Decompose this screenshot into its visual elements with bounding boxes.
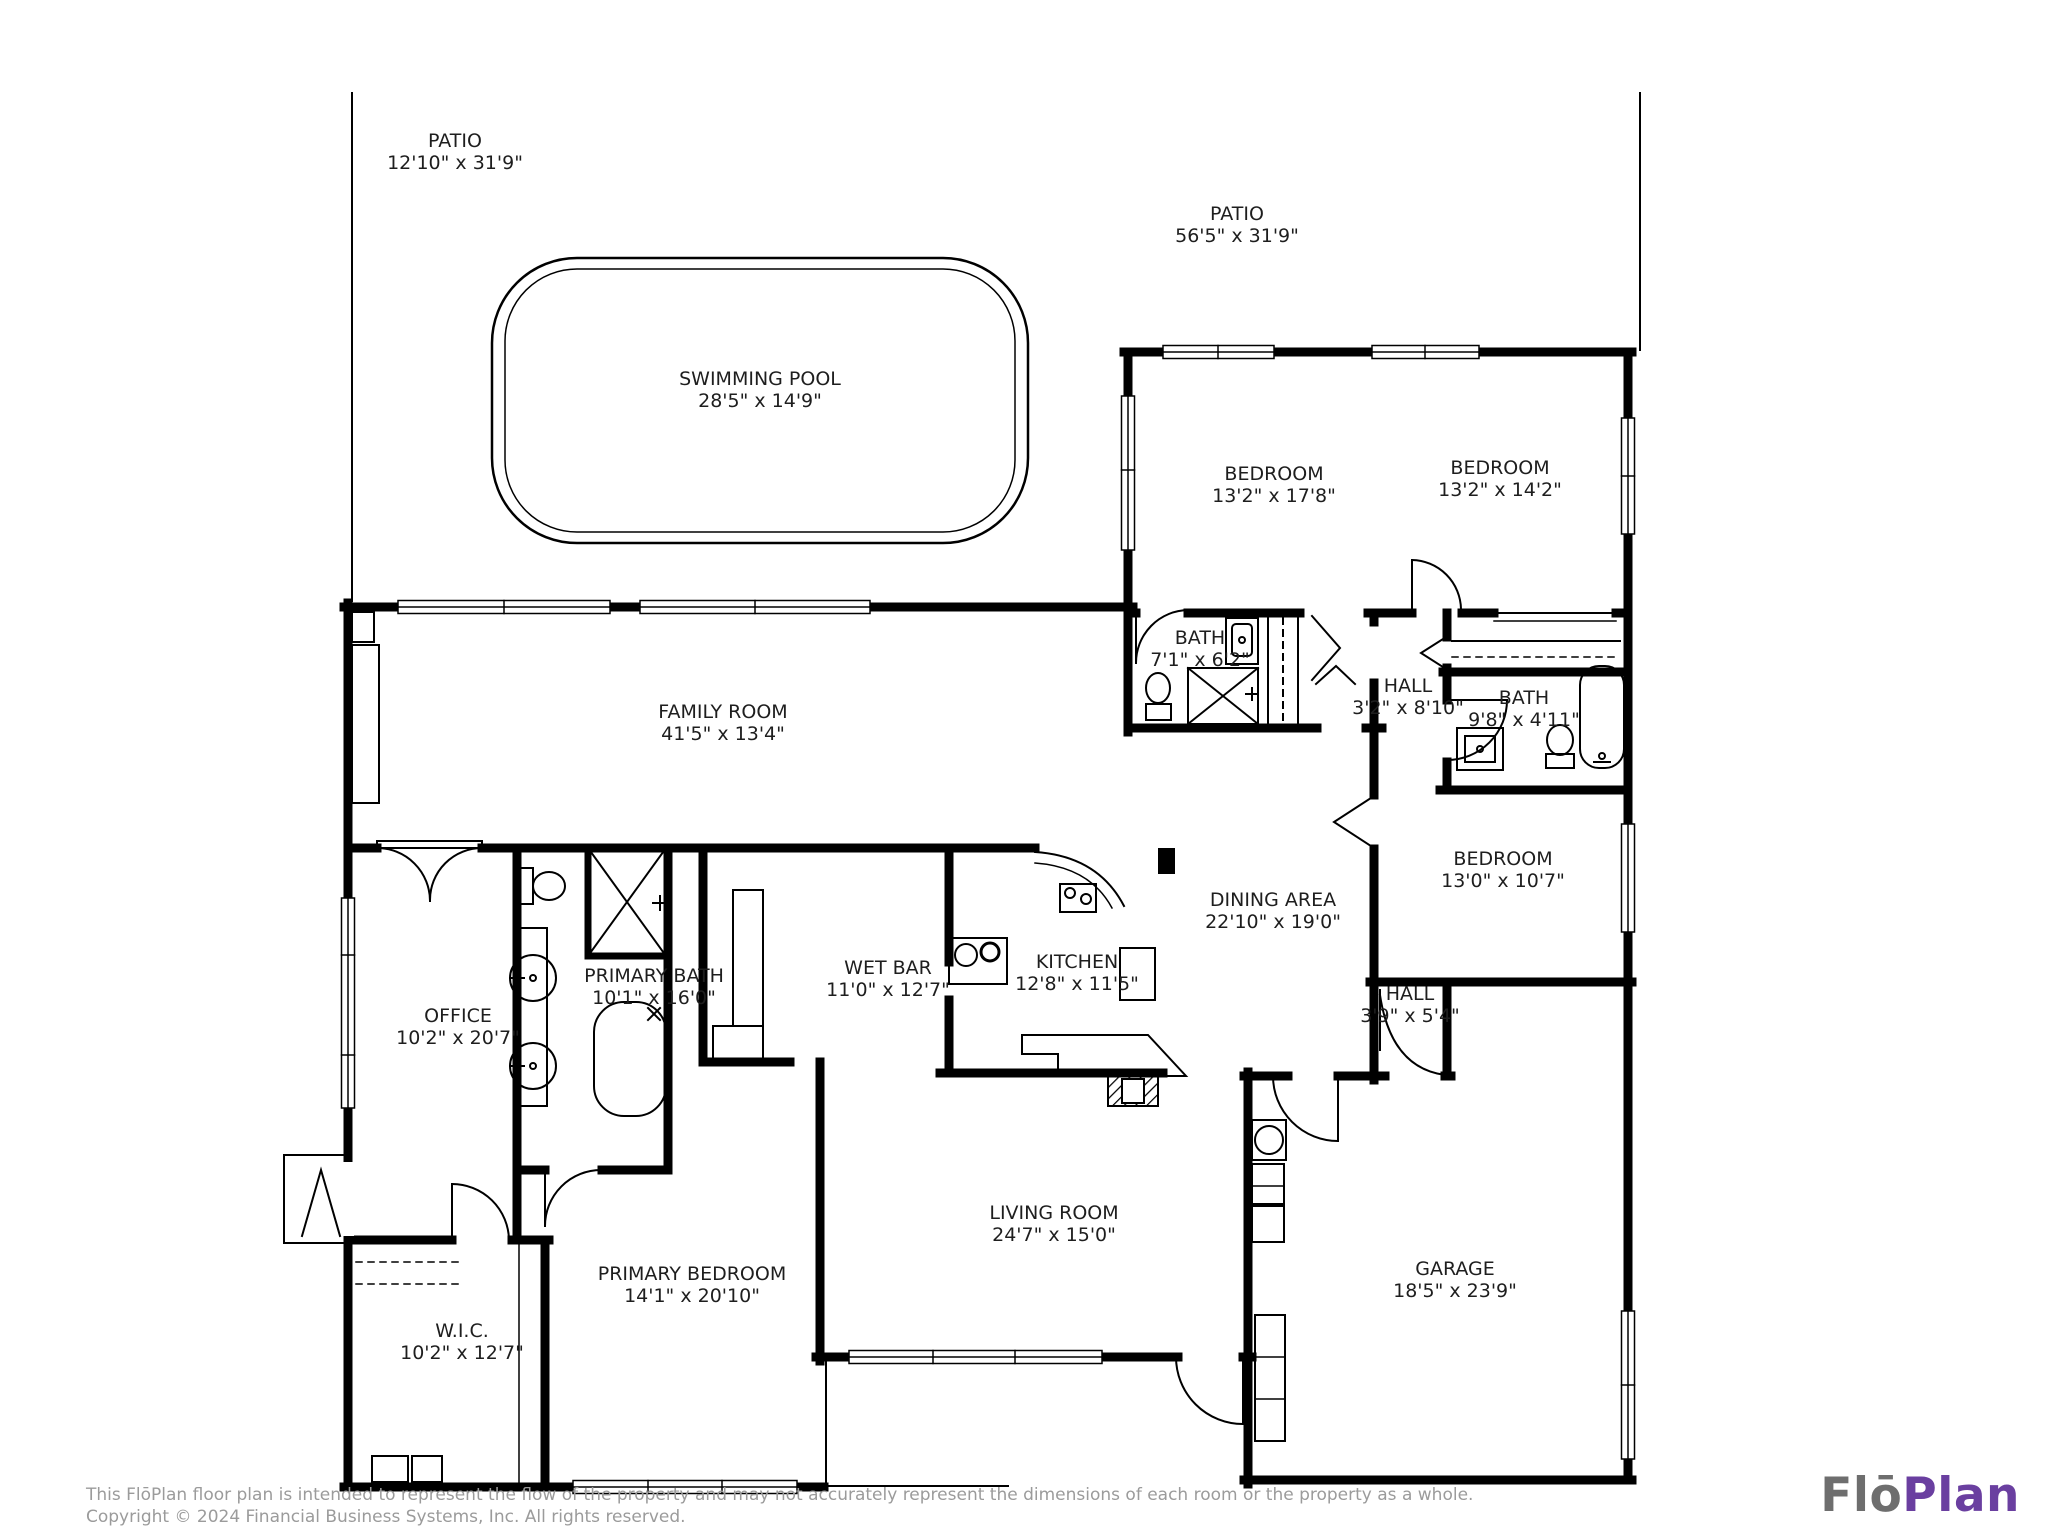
floplan-logo: FlōPlan [1820, 1468, 2020, 1523]
room-label-family-room: FAMILY ROOM41'5" x 13'4" [658, 701, 787, 745]
room-label-wic: W.I.C.10'2" x 12'7" [400, 1320, 524, 1364]
windows [342, 346, 1635, 1494]
footer-disclaimer: This FlōPlan floor plan is intended to r… [86, 1484, 1473, 1506]
room-label-wet-bar: WET BAR11'0" x 12'7" [826, 957, 950, 1001]
room-label-kitchen: KITCHEN12'8" x 11'5" [1015, 951, 1139, 995]
room-label-living-room: LIVING ROOM24'7" x 15'0" [989, 1202, 1118, 1246]
room-label-hall-2: HALL3'9" x 5'4" [1360, 983, 1460, 1027]
room-label-swimming-pool: SWIMMING POOL28'5" x 14'9" [679, 368, 841, 412]
walls [344, 352, 1632, 1487]
room-label-primary-bedroom: PRIMARY BEDROOM14'1" x 20'10" [598, 1263, 786, 1307]
footer: This FlōPlan floor plan is intended to r… [86, 1484, 1473, 1528]
room-label-patio-right: PATIO56'5" x 31'9" [1175, 203, 1299, 247]
room-label-bedroom-3: BEDROOM13'0" x 10'7" [1441, 848, 1565, 892]
footer-copyright: Copyright © 2024 Financial Business Syst… [86, 1506, 1473, 1528]
room-label-primary-bath: PRIMARY BATH10'1" x 16'0" [584, 965, 724, 1009]
room-label-bedroom-2: BEDROOM13'2" x 14'2" [1438, 457, 1562, 501]
floor-plan-drawing [0, 0, 2048, 1536]
room-label-hall-1: HALL3'2" x 8'10" [1352, 675, 1464, 719]
logo-flo: Flō [1820, 1468, 1902, 1523]
room-label-bedroom-1: BEDROOM13'2" x 17'8" [1212, 463, 1336, 507]
room-label-bath-1: BATH7'1" x 6'2" [1150, 627, 1250, 671]
room-label-dining-area: DINING AREA22'10" x 19'0" [1205, 889, 1341, 933]
room-label-office: OFFICE10'2" x 20'7" [396, 1005, 520, 1049]
room-label-patio-left: PATIO12'10" x 31'9" [387, 130, 523, 174]
room-label-garage: GARAGE18'5" x 23'9" [1393, 1258, 1517, 1302]
floor-plan-page: PATIO12'10" x 31'9" PATIO56'5" x 31'9" S… [0, 0, 2048, 1536]
logo-plan: Plan [1902, 1468, 2020, 1523]
room-label-bath-2: BATH9'8" x 4'11" [1468, 687, 1580, 731]
